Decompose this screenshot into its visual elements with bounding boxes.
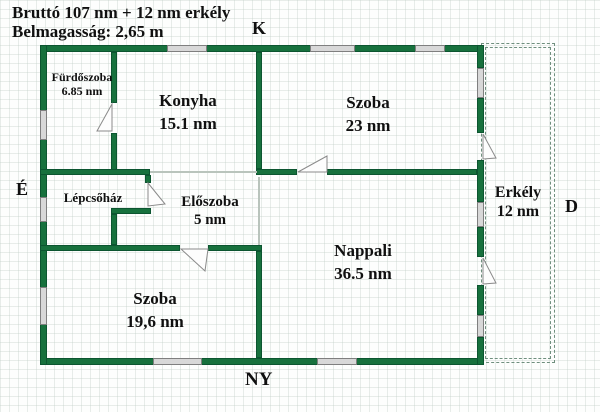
- compass-north: É: [16, 179, 28, 200]
- room-area: 19,6 nm: [126, 311, 184, 334]
- door-room23: [298, 156, 327, 172]
- door-bedroom196: [181, 249, 208, 271]
- window-stairwell-left: [40, 197, 47, 222]
- window-living-balcony-2: [477, 315, 484, 337]
- window-living-balcony-1: [477, 202, 484, 227]
- wall-entrance-jamb: [145, 175, 151, 183]
- window-bedroom-bottom: [153, 358, 202, 365]
- room-name: Konyha: [159, 90, 217, 113]
- window-bedroom-left: [40, 287, 47, 325]
- window-room23-balcony: [477, 68, 484, 98]
- room-area: 23 nm: [346, 115, 391, 138]
- wall-exterior-right-seg: [477, 98, 484, 133]
- room-label-room23: Szoba 23 nm: [346, 92, 391, 138]
- room-label-bathroom: Fürdőszoba 6.85 nm: [52, 70, 113, 99]
- wall-bathroom-right-lower: [111, 133, 117, 171]
- room-label-hall: Előszoba 5 nm: [181, 193, 239, 229]
- room-area: 6.85 nm: [52, 84, 113, 98]
- wall-bedroom-living-divider: [256, 251, 262, 358]
- wall-kitchen-room-divider: [256, 52, 262, 169]
- wall-main-horizontal-left: [40, 169, 150, 175]
- opening-hall-living: [258, 177, 260, 245]
- floor-plan: Bruttó 107 nm + 12 nm erkély Belmagasság…: [0, 0, 600, 412]
- room-name: Előszoba: [181, 193, 239, 211]
- wall-hall-bedroom-left: [40, 245, 180, 251]
- compass-south: D: [565, 196, 578, 217]
- room-label-living: Nappali 36.5 nm: [334, 240, 392, 286]
- room-name: Szoba: [346, 92, 391, 115]
- door-bathroom: [97, 104, 112, 131]
- wall-exterior-right-seg: [477, 45, 484, 68]
- room-label-stairwell: Lépcsőház: [64, 190, 123, 206]
- window-bathroom-left: [40, 110, 47, 140]
- window-room23-top-2: [415, 45, 445, 52]
- wall-exterior-bottom: [40, 358, 484, 365]
- wall-main-horizontal-right: [327, 169, 477, 175]
- wall-stairwell-step-v: [111, 214, 117, 245]
- compass-west: NY: [245, 369, 272, 391]
- room-area: 36.5 nm: [334, 263, 392, 286]
- window-living-bottom: [317, 358, 357, 365]
- room-label-balcony: Erkély 12 nm: [495, 183, 541, 221]
- room-name: Nappali: [334, 240, 392, 263]
- room-name: Lépcsőház: [64, 190, 123, 206]
- window-kitchen-top: [167, 45, 207, 52]
- wall-exterior-right-seg: [477, 337, 484, 365]
- room-label-bedroom196: Szoba 19,6 nm: [126, 288, 184, 334]
- door-entrance: [148, 183, 165, 206]
- compass-east: K: [252, 18, 266, 39]
- plan-title: Bruttó 107 nm + 12 nm erkély Belmagasság…: [12, 3, 230, 41]
- wall-hall-bedroom-right: [208, 245, 262, 251]
- wall-exterior-right-seg: [477, 160, 484, 202]
- title-line-ceiling-height: Belmagasság: 2,65 m: [12, 22, 230, 41]
- wall-exterior-right-seg: [477, 227, 484, 257]
- room-name: Szoba: [126, 288, 184, 311]
- window-room23-top-1: [310, 45, 355, 52]
- room-area: 12 nm: [495, 202, 541, 221]
- room-area: 5 nm: [181, 211, 239, 229]
- room-area: 15.1 nm: [159, 113, 217, 136]
- room-name: Erkély: [495, 183, 541, 202]
- opening-kitchen-hall: [150, 171, 257, 173]
- room-label-kitchen: Konyha 15.1 nm: [159, 90, 217, 136]
- room-name: Fürdőszoba: [52, 70, 113, 84]
- wall-exterior-right-seg: [477, 285, 484, 315]
- title-line-gross-area: Bruttó 107 nm + 12 nm erkély: [12, 3, 230, 22]
- wall-main-horizontal-mid: [256, 169, 297, 175]
- wall-stairwell-step-h: [111, 208, 151, 214]
